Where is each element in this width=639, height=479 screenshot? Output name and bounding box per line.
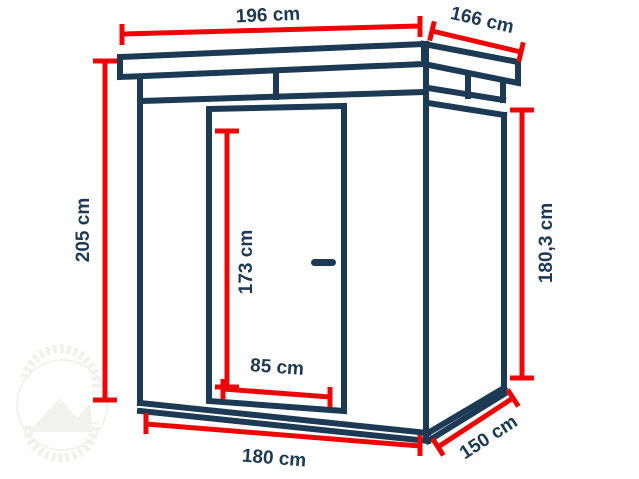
roof-front-fascia: [120, 44, 424, 77]
diagram-canvas: 196 cm 166 cm 205 cm 180,3 cm 173 cm 85: [0, 0, 639, 479]
dim-roof-depth-label: 166 cm: [448, 3, 516, 38]
dim-height-front-line: [93, 61, 117, 400]
dim-roof-width-label: 196 cm: [235, 4, 300, 28]
side-wall-top-rail: [428, 103, 504, 115]
watermark-badge: [17, 349, 107, 458]
dim-roof-width: 196 cm: [122, 4, 420, 45]
shed-line-drawing: [120, 44, 518, 441]
dim-door-height: 173 cm: [215, 131, 257, 387]
dim-height-front: 205 cm: [73, 61, 117, 400]
dim-base-width: 180 cm: [146, 413, 420, 472]
dim-door-width-label: 85 cm: [249, 355, 304, 380]
front-wall-top-rail: [141, 92, 426, 101]
watermark-mountain-icon: [28, 398, 93, 432]
dim-height-back: 180,3 cm: [510, 110, 557, 378]
door-handle-icon: [311, 259, 336, 266]
dim-height-front-label: 205 cm: [73, 198, 94, 262]
watermark-top-text-arc: [25, 349, 97, 392]
shed-dimension-diagram: 196 cm 166 cm 205 cm 180,3 cm 173 cm 85: [0, 0, 639, 479]
dim-door-height-label: 173 cm: [236, 230, 257, 294]
dim-height-back-label: 180,3 cm: [536, 203, 557, 283]
dim-base-width-label: 180 cm: [241, 446, 307, 472]
dim-height-back-line: [510, 110, 534, 378]
dim-door-width: 85 cm: [223, 355, 330, 407]
